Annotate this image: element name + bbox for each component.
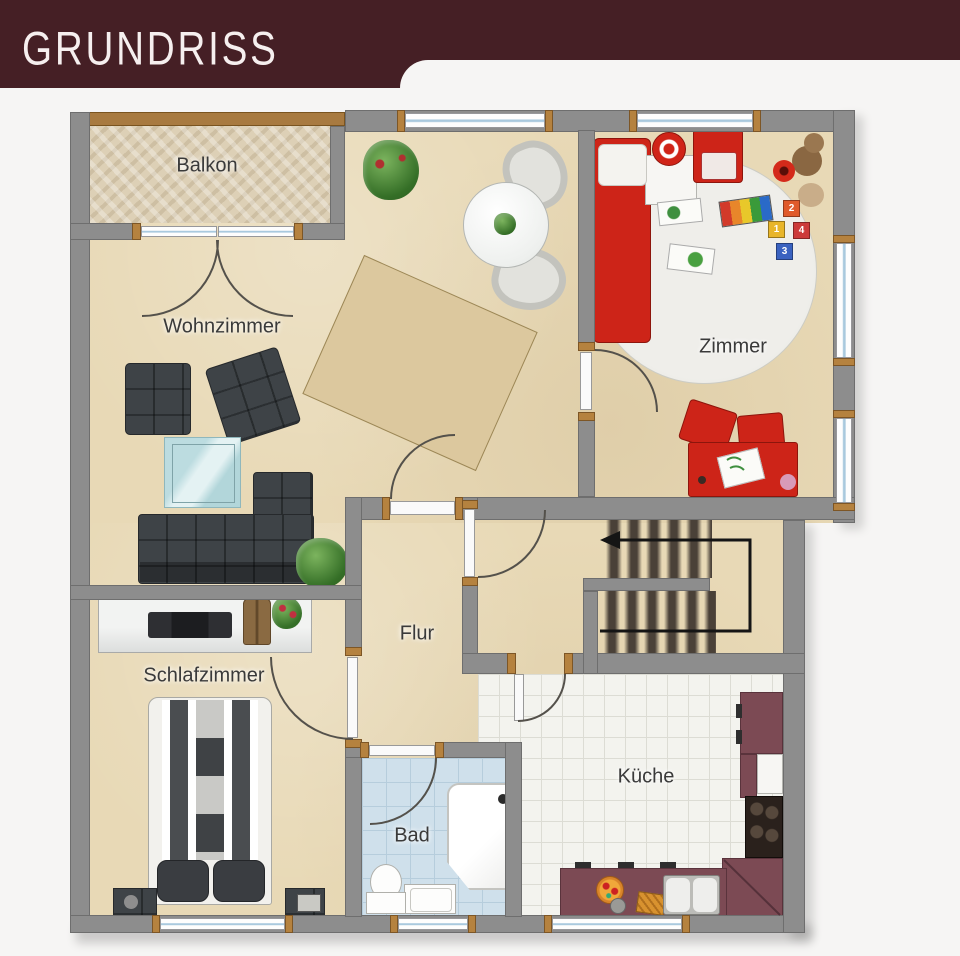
balcony-door-leaf-left [141, 226, 217, 237]
sofa-side-plant-icon [296, 538, 348, 588]
wall-kitchen-top-right [565, 653, 805, 674]
stairs-lower-flight [600, 591, 716, 653]
kitchen-sink-basin-left [666, 878, 690, 912]
desk-pink-ball-icon [780, 474, 796, 490]
wall-divider-lower [578, 412, 595, 497]
kitchen-oven-appliance [757, 754, 783, 794]
kitchen-window-jamb-right [682, 915, 690, 933]
number-block-4: 4 [793, 222, 810, 239]
wall-bath-right [505, 742, 522, 917]
bathroom-sink-basin [410, 888, 452, 912]
sofa-backrest-shade [140, 562, 312, 582]
living-door-leaf [390, 501, 455, 515]
bedroom-door-jamb-top [345, 647, 362, 656]
toilet-tank [366, 892, 406, 914]
bed-pillow-left [157, 860, 209, 902]
kids-window-right-1 [836, 243, 852, 358]
bath-door-jamb-left [360, 742, 369, 758]
kids-window-top [637, 113, 753, 128]
living-window [405, 113, 545, 128]
number-block-3: 3 [776, 243, 793, 260]
balcony-door-jamb-left [132, 223, 141, 240]
kids-door-jamb-top [578, 342, 595, 351]
kids-window-right2-jamb-bottom [833, 503, 855, 511]
number-block-1: 1 [768, 221, 785, 238]
cutting-board-icon [636, 891, 667, 916]
floor-plan-page: GRUNDRISS 2 1 4 3 [0, 0, 960, 956]
wall-right-lower [783, 520, 805, 933]
kitchen-counter-right-top [740, 692, 783, 754]
teddy-bear-light-icon [798, 183, 824, 207]
kitchen-window-jamb-left [544, 915, 552, 933]
room-label-wohnzimmer: Wohnzimmer [163, 316, 280, 339]
table-centerpiece-plant [494, 213, 516, 235]
kitchen-corner-counter [722, 858, 783, 917]
kids-bed-pillow [598, 144, 647, 186]
kids-window-right2-jamb-top [833, 410, 855, 418]
number-block-2: 2 [783, 200, 800, 217]
bedroom-door-leaf [347, 657, 358, 738]
page-title: GRUNDRISS [22, 22, 279, 76]
counter-handle-4 [736, 704, 742, 718]
living-window-jamb-right [545, 110, 553, 132]
room-label-flur: Flur [400, 623, 434, 646]
wall-hall-left-lower [345, 740, 362, 917]
kitchen-door-jamb-left [507, 653, 516, 674]
kids-window-right-2 [836, 418, 852, 503]
kitchen-door-jamb-right [564, 653, 573, 674]
wall-divider-upper [578, 130, 595, 350]
kids-door-jamb-bottom [578, 412, 595, 421]
bath-door-leaf [369, 745, 435, 756]
balcony-rail [70, 112, 345, 126]
wall-stair-stub [583, 578, 710, 591]
kids-door-leaf [580, 352, 592, 410]
kitchen-stove [745, 796, 783, 858]
desk-dark-dot-icon [698, 476, 706, 484]
nightstand-right-radio-icon [297, 894, 321, 912]
wall-bedroom-top [70, 585, 362, 600]
kids-window-top-jamb-left [629, 110, 637, 132]
ring-toy-icon [652, 132, 686, 166]
hanging-vest-icon [243, 598, 271, 645]
bath-door-jamb-right [435, 742, 444, 758]
room-label-zimmer: Zimmer [699, 336, 767, 359]
wall-mid-horizontal-right [455, 497, 855, 520]
kitchen-door-leaf [514, 674, 524, 721]
bedroom-window-jamb-left [152, 915, 160, 933]
balcony-door-leaf-right [218, 226, 294, 237]
sideboard-tv-icon [148, 612, 232, 638]
hall-door-jamb-top [462, 500, 478, 509]
kids-window-right1-jamb-top [833, 235, 855, 243]
kitchen-sink-basin-right [693, 878, 717, 912]
kitchen-counter-right-strip [740, 754, 757, 798]
red-dresser-front [701, 152, 737, 180]
sideboard-flowers-icon [272, 597, 302, 629]
green-book-toy-2 [667, 243, 716, 274]
counter-handle-5 [736, 730, 742, 744]
room-label-bad: Bad [394, 825, 430, 848]
bath-window-jamb-left [390, 915, 398, 933]
bed-center-squares [196, 700, 224, 860]
red-flower-toy-icon [773, 160, 795, 182]
room-label-balkon: Balkon [176, 155, 237, 178]
wall-hall-left-upper [345, 497, 362, 655]
kitchen-pot-icon [610, 898, 626, 914]
wall-stair-left [583, 591, 598, 674]
living-door-jamb-left [382, 497, 390, 520]
hall-door-leaf [464, 509, 475, 577]
kitchen-window [552, 918, 682, 930]
counter-handle-3 [660, 862, 676, 868]
glass-table-frame [172, 444, 235, 503]
balcony-door-jamb-right [294, 223, 303, 240]
stairs-upper-flight [602, 515, 712, 578]
wall-balcony-bottom-left [70, 223, 140, 240]
counter-handle-2 [618, 862, 634, 868]
corner-plant-icon [363, 140, 419, 200]
bath-window-jamb-right [468, 915, 476, 933]
bath-window [398, 918, 468, 930]
green-book-toy-1 [657, 198, 703, 226]
room-label-kueche: Küche [618, 766, 675, 789]
bedroom-window-jamb-right [285, 915, 293, 933]
hall-door-jamb-bottom [462, 577, 478, 586]
bed-pillow-right [213, 860, 265, 902]
armchair-ottoman-1 [125, 363, 191, 435]
kids-window-right1-jamb-bottom [833, 358, 855, 366]
teddy-bear-head-icon [804, 133, 824, 153]
kids-window-top-jamb-right [753, 110, 761, 132]
bedroom-window [160, 918, 285, 930]
living-window-jamb-left [397, 110, 405, 132]
counter-handle-1 [575, 862, 591, 868]
nightstand-left-knob-icon [124, 895, 138, 909]
room-label-schlafzimmer: Schlafzimmer [143, 665, 264, 688]
